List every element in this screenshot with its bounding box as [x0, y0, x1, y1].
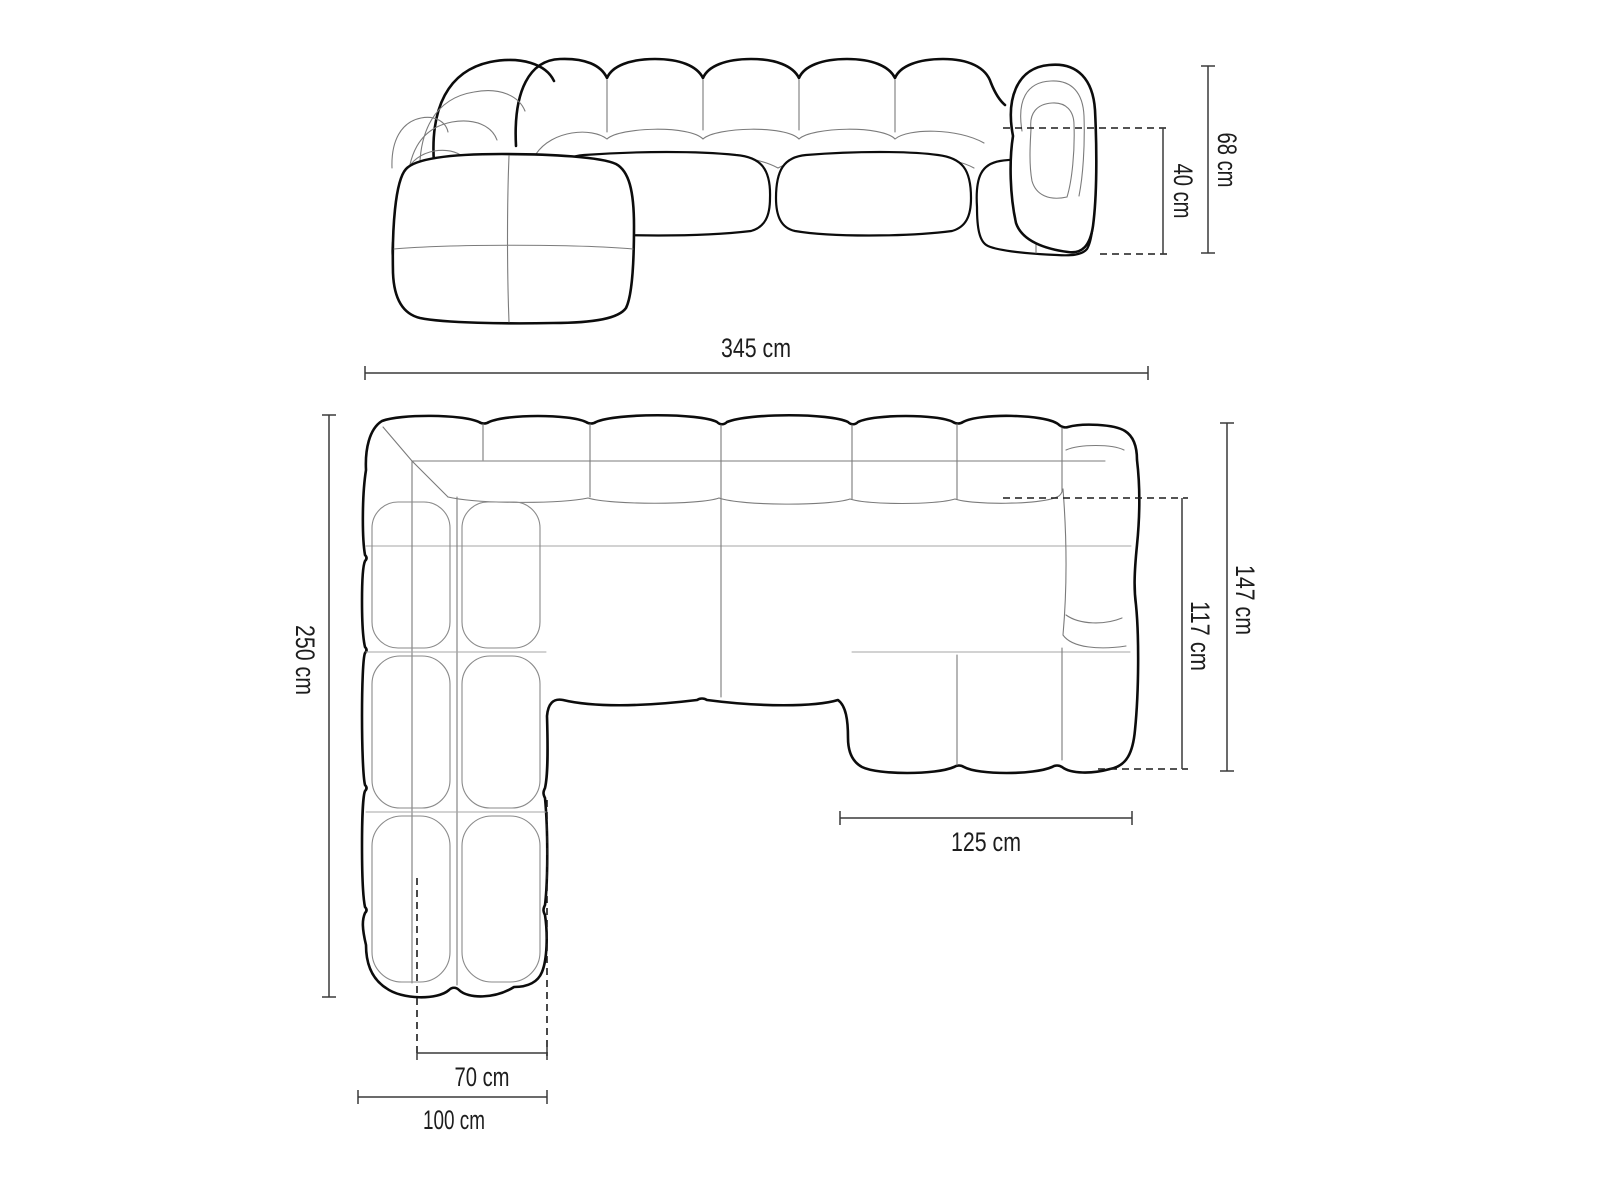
corner-back-arc: [433, 60, 554, 163]
dimension-label-40cm: 40 cm: [1168, 164, 1198, 219]
dimension-chaise-width: 100 cm: [358, 1090, 547, 1135]
dimension-label-147cm: 147 cm: [1230, 565, 1260, 635]
diagram-canvas: 40 cm 68 cm: [0, 0, 1600, 1200]
dimension-right-seat-width: 125 cm: [840, 811, 1132, 857]
chaise-front-module: [393, 154, 634, 323]
dimension-label-68cm: 68 cm: [1212, 133, 1242, 188]
dimension-total-depth: 250 cm: [290, 415, 336, 997]
dimension-label-250cm: 250 cm: [290, 625, 320, 695]
dimension-label-100cm: 100 cm: [423, 1105, 485, 1135]
sofa-front-elevation: 40 cm 68 cm: [392, 59, 1242, 323]
seat-cushion: [776, 152, 971, 236]
back-cushion-bottom-scallop: [536, 129, 984, 154]
dimension-total-width: 345 cm: [365, 333, 1148, 380]
dimension-label-117cm: 117 cm: [1185, 601, 1215, 671]
dimension-right-depth: 147 cm: [1220, 423, 1260, 771]
dimension-label-345cm: 345 cm: [721, 333, 791, 363]
dimension-label-125cm: 125 cm: [951, 827, 1021, 857]
dimension-label-70cm: 70 cm: [455, 1062, 510, 1092]
sofa-dimensions-diagram: 40 cm 68 cm: [0, 0, 1600, 1200]
sofa-top-plan: 345 cm 250 cm 147 cm 117 cm: [290, 333, 1260, 1135]
dimension-total-height: 68 cm: [1201, 66, 1242, 253]
